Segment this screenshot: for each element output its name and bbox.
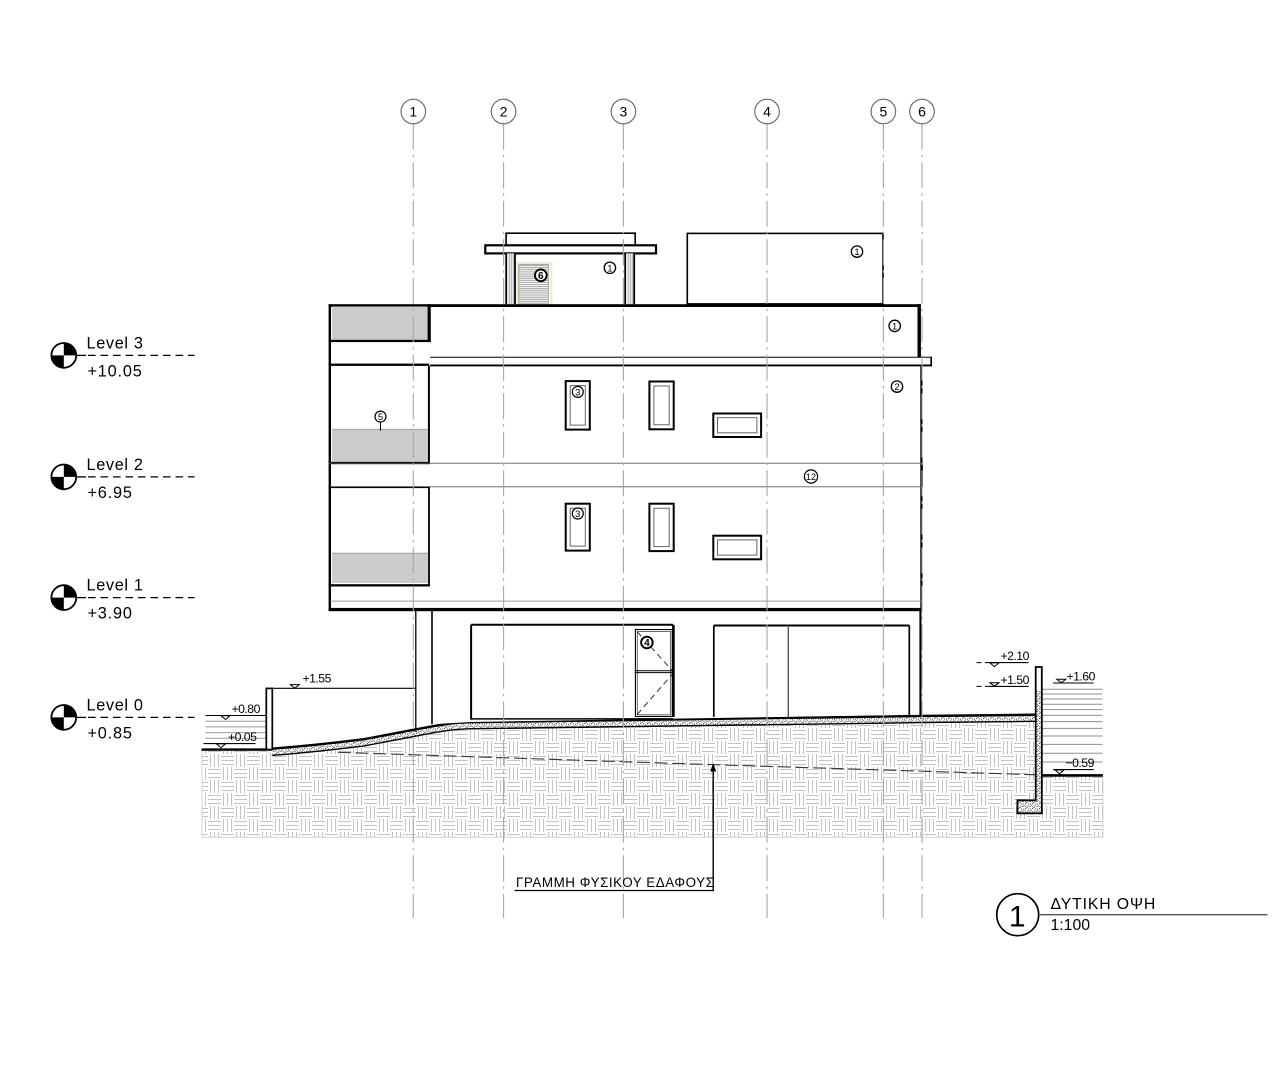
svg-text:3: 3 <box>620 104 628 120</box>
svg-text:1: 1 <box>409 104 417 120</box>
svg-text:+3.90: +3.90 <box>88 605 133 623</box>
svg-text:5: 5 <box>880 104 888 120</box>
svg-text:+0.85: +0.85 <box>88 724 133 742</box>
svg-text:6: 6 <box>538 271 544 282</box>
svg-text:6: 6 <box>918 104 926 120</box>
svg-text:+10.05: +10.05 <box>88 362 143 380</box>
svg-text:2: 2 <box>500 104 508 120</box>
svg-text:+0.80: +0.80 <box>232 702 261 716</box>
svg-text:+1.55: +1.55 <box>303 672 332 686</box>
svg-text:+6.95: +6.95 <box>88 484 133 502</box>
svg-text:1: 1 <box>892 321 897 332</box>
svg-text:Level 1: Level 1 <box>87 577 144 595</box>
svg-text:1: 1 <box>1009 900 1026 933</box>
svg-text:12: 12 <box>806 472 816 482</box>
svg-text:1: 1 <box>607 263 612 274</box>
svg-text:4: 4 <box>763 104 771 120</box>
svg-text:4: 4 <box>644 638 650 649</box>
svg-text:+1.50: +1.50 <box>1001 673 1030 687</box>
svg-text:Level 2: Level 2 <box>87 456 144 474</box>
svg-text:Level 3: Level 3 <box>87 335 144 353</box>
svg-text:3: 3 <box>575 387 580 398</box>
svg-text:+1.60: +1.60 <box>1067 669 1096 683</box>
svg-text:+2.10: +2.10 <box>1001 649 1030 663</box>
svg-text:−0.59: −0.59 <box>1066 756 1095 770</box>
svg-text:ΔΥΤΙΚΗ ΟΨΗ: ΔΥΤΙΚΗ ΟΨΗ <box>1051 896 1157 913</box>
svg-text:5: 5 <box>378 412 383 423</box>
svg-text:3: 3 <box>575 509 580 520</box>
svg-text:2: 2 <box>894 382 899 393</box>
svg-text:1:100: 1:100 <box>1051 917 1091 934</box>
svg-text:ΓΡΑΜΜΗ ΦΥΣΙΚΟΥ ΕΔΑΦΟΥΣ: ΓΡΑΜΜΗ ΦΥΣΙΚΟΥ ΕΔΑΦΟΥΣ <box>516 875 714 890</box>
svg-text:+0.05: +0.05 <box>228 730 257 744</box>
svg-text:1: 1 <box>854 247 859 258</box>
svg-text:Level 0: Level 0 <box>87 697 144 715</box>
